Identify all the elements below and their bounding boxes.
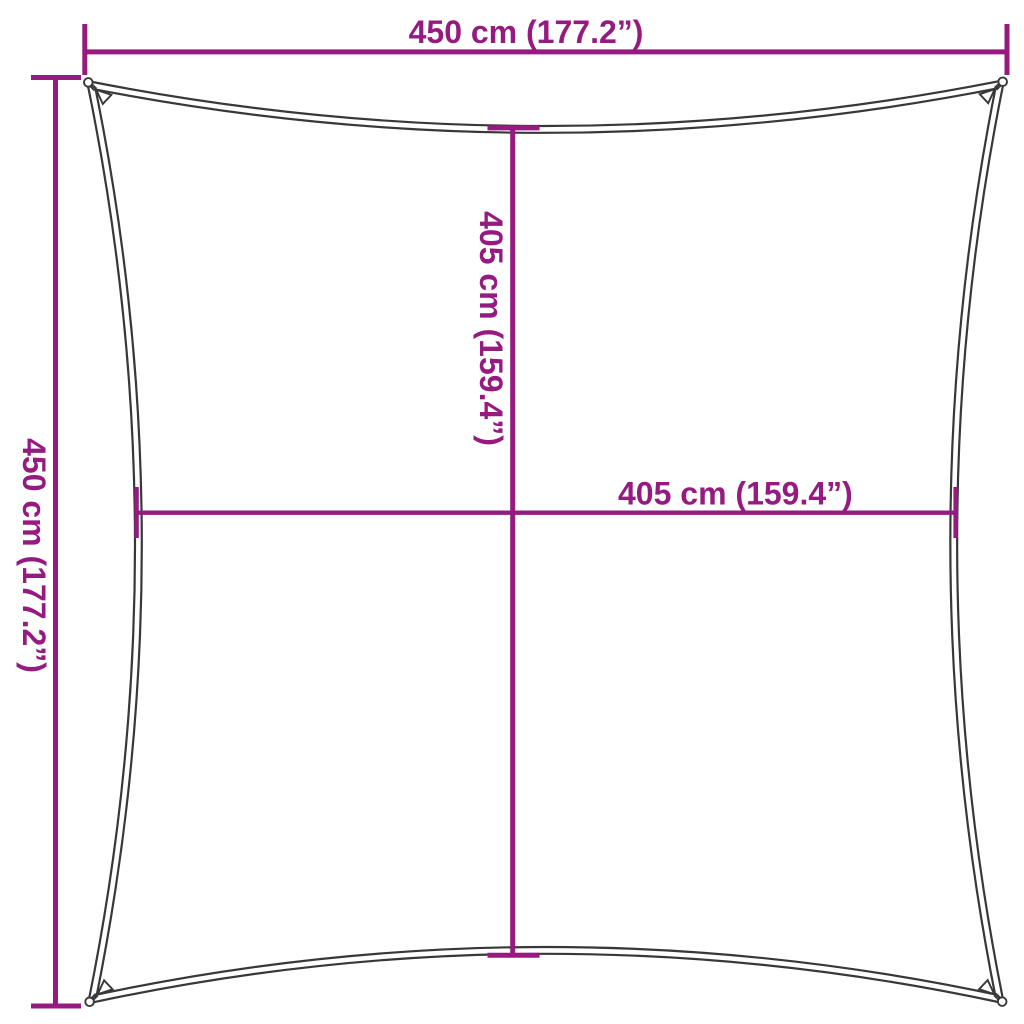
svg-text:450 cm (177.2”): 450 cm (177.2”) [16, 438, 52, 673]
svg-text:450 cm (177.2”): 450 cm (177.2”) [409, 14, 644, 50]
svg-text:405 cm (159.4”): 405 cm (159.4”) [473, 211, 509, 446]
svg-text:405 cm (159.4”): 405 cm (159.4”) [618, 475, 853, 511]
